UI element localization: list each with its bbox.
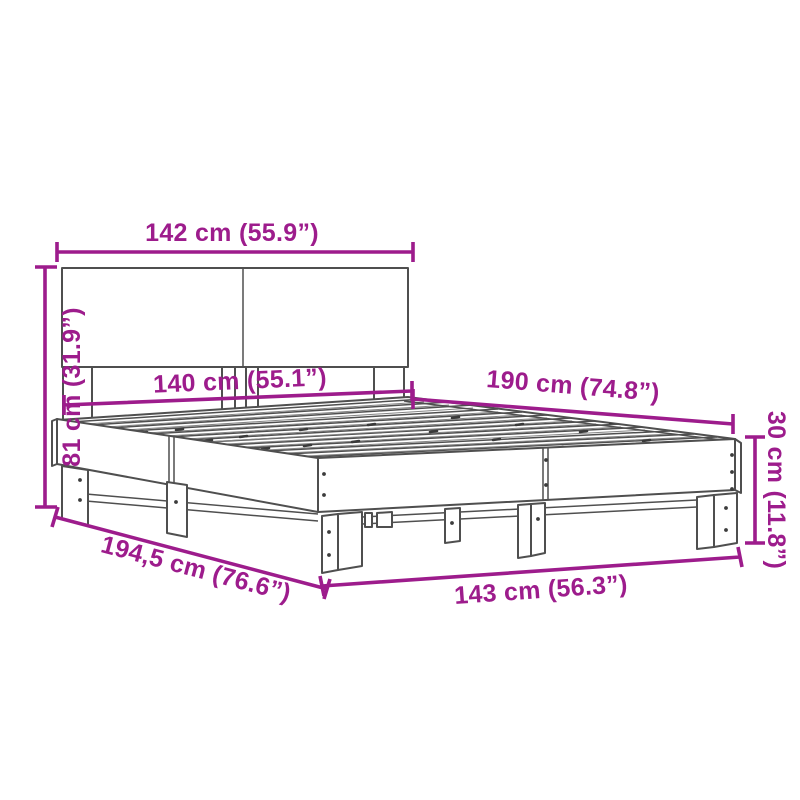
- dim-label-slat-area-length: 190 cm (74.8”): [485, 365, 660, 407]
- leg-foot-right-side: [697, 495, 714, 549]
- front-rail-end-face: [735, 439, 741, 493]
- bed-frame-drawing: [52, 268, 741, 573]
- dimension-total-length: 194,5 cm (76.6”): [52, 507, 330, 607]
- leg-glimpse-a: [365, 513, 372, 527]
- bed-frame-diagram: 142 cm (55.9”) 81 cm (31.9”) 140 cm (55.…: [0, 0, 800, 800]
- leg-foot-right-front: [714, 493, 737, 547]
- dim-label-frame-height: 30 cm (11.8”): [762, 411, 790, 569]
- dimension-headboard-width: 142 cm (55.9”): [57, 219, 413, 262]
- leg-foot-left-front: [338, 512, 362, 570]
- leg-head-left: [62, 466, 88, 525]
- dim-label-slat-area-width: 140 cm (55.1”): [153, 363, 328, 399]
- headboard-panels: [62, 268, 408, 367]
- leg-glimpse-b: [377, 512, 392, 527]
- dimension-frame-height: 30 cm (11.8”): [745, 411, 790, 569]
- diagram-canvas: 142 cm (55.9”) 81 cm (31.9”) 140 cm (55.…: [0, 0, 800, 800]
- dim-line-headboard-height: [35, 267, 57, 507]
- dim-line-frame-height: [745, 437, 765, 543]
- leg-front-mid-right-side: [518, 504, 531, 558]
- side-rail-end-face: [52, 419, 57, 466]
- dim-label-total-length: 194,5 cm (76.6”): [98, 531, 294, 608]
- dim-label-headboard-height: 81 cm (31.9”): [58, 307, 86, 467]
- leg-front-mid-right-front: [531, 503, 545, 556]
- leg-side-middle: [167, 482, 187, 537]
- leg-front-middle: [445, 508, 460, 543]
- dim-label-headboard-width: 142 cm (55.9”): [145, 219, 319, 247]
- leg-foot-left-side: [322, 514, 338, 573]
